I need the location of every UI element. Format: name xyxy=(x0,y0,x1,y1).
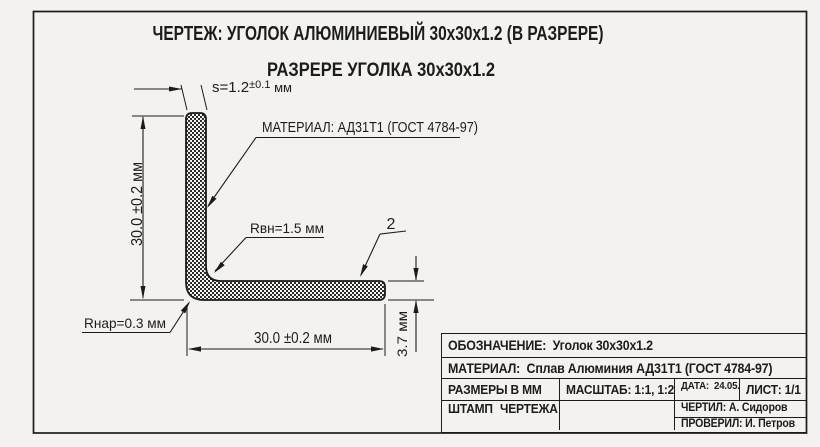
sheet-cell: ЛИСТ: 1/1 xyxy=(739,379,806,400)
date-label: ДАТА: xyxy=(681,381,709,392)
drawing-title-line2: РАЗРЕРЕ УГОЛКА 30х30х1.2 xyxy=(267,60,495,81)
designation-value: Уголок 30х30х1.2 xyxy=(553,338,653,353)
inner-radius-label: Rвн=1.5 мм xyxy=(250,220,324,236)
checked-by: ПРОВЕРИЛ: И. Петров xyxy=(675,418,806,431)
material-value: Сплав Алюминия АД31Т1 (ГОСТ 4784-97) xyxy=(527,361,773,376)
title-block-designation-row: ОБОЗНАЧЕНИЕ:Уголок 30х30х1.2 xyxy=(442,334,806,358)
title-block-signature-row: ШТАМП ЧЕРТЕЖА ЧЕРТИЛ: А. Сидоров ПРОВЕРИ… xyxy=(442,401,806,430)
end-thickness-dimension-label: 3.7 мм xyxy=(394,311,410,357)
date-value: 24.05.2024 xyxy=(714,381,739,392)
title-block-material-row: МАТЕРИАЛ:Сплав Алюминия АД31Т1 (ГОСТ 478… xyxy=(442,358,806,379)
thickness-dimension-label: s=1.2±0.1 мм xyxy=(212,79,292,96)
height-dimension-label: 30.0 ±0.2 мм xyxy=(129,162,146,246)
designation-label: ОБОЗНАЧЕНИЕ: xyxy=(448,338,546,353)
signatures-cell: ЧЕРТИЛ: А. Сидоров ПРОВЕРИЛ: И. Петров xyxy=(674,401,806,430)
material-label: МАТЕРИАЛ: xyxy=(448,361,520,376)
date-cell: ДАТА: 24.05.2024 xyxy=(674,379,739,400)
width-dimension-label: 30.0 ±0.2 мм xyxy=(254,330,332,347)
item-number-label: 2 xyxy=(387,216,396,233)
empty-cell xyxy=(559,401,674,430)
drawing-page: ЧЕРТЕЖ: УГОЛОК АЛЮМИНИЕВЫЙ 30х30х1.2 (В … xyxy=(0,0,820,447)
stamp-cell: ШТАМП ЧЕРТЕЖА xyxy=(442,401,559,430)
outer-radius-label: Rнар=0.3 мм xyxy=(84,315,166,331)
scale-cell: МАСШТАБ: 1:1, 1:2 xyxy=(559,379,674,400)
material-note-label: МАТЕРИАЛ: АД31Т1 (ГОСТ 4784-97) xyxy=(262,119,478,136)
units-cell: РАЗМЕРЫ В ММ xyxy=(442,379,559,400)
angle-profile-section xyxy=(186,113,385,300)
drawing-title-line1: ЧЕРТЕЖ: УГОЛОК АЛЮМИНИЕВЫЙ 30х30х1.2 (В … xyxy=(153,21,604,45)
drawn-by: ЧЕРТИЛ: А. Сидоров xyxy=(675,401,806,418)
title-block-info-row: РАЗМЕРЫ В ММ МАСШТАБ: 1:1, 1:2 ДАТА: 24.… xyxy=(442,379,806,401)
title-block: ОБОЗНАЧЕНИЕ:Уголок 30х30х1.2 МАТЕРИАЛ:Сп… xyxy=(441,333,807,433)
